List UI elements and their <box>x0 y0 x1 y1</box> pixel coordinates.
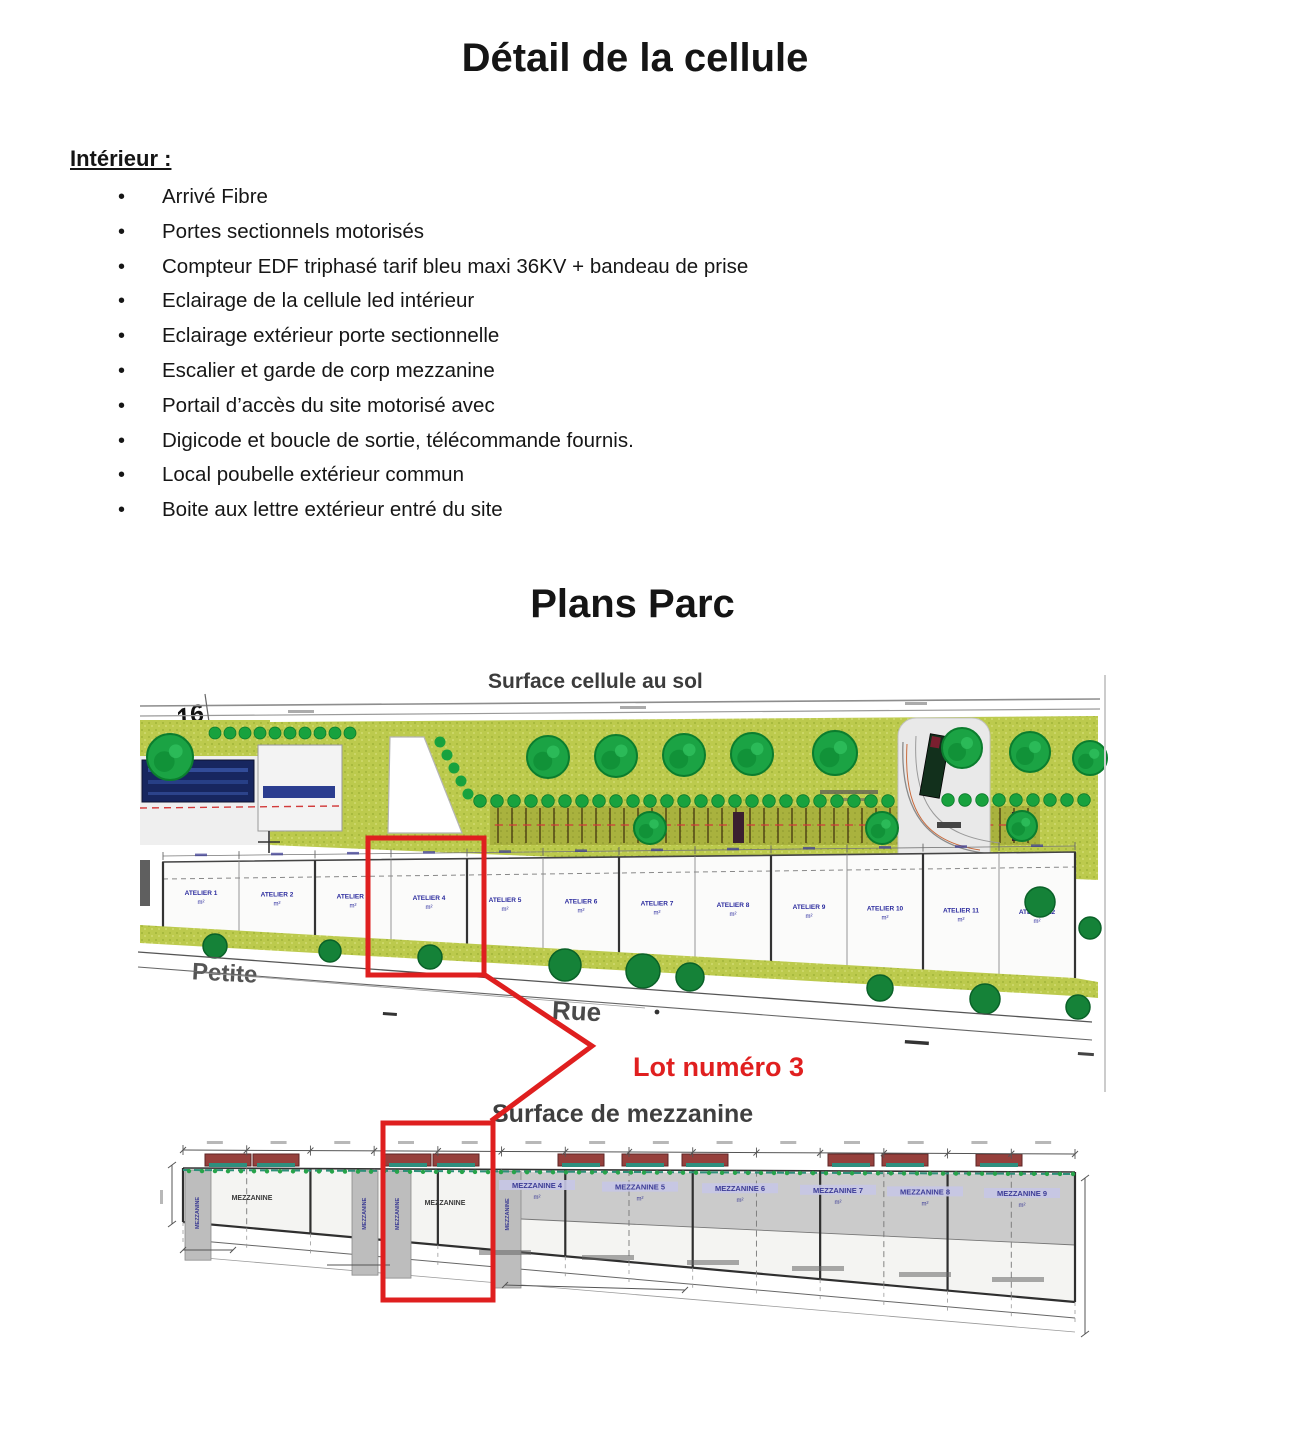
bush-icon <box>1079 917 1101 939</box>
hedge-icon <box>344 727 356 739</box>
interior-bullet-0: Arrivé Fibre <box>118 180 748 215</box>
hedge-icon <box>435 737 446 748</box>
hedge-icon <box>542 795 555 808</box>
dim-text-mark <box>398 1141 414 1144</box>
hedge-icon <box>882 795 895 808</box>
atelier-cell-area: m² <box>426 905 433 911</box>
hedge-icon <box>661 795 674 808</box>
hedge-dot-icon <box>356 1169 360 1173</box>
atelier-cell-area: m² <box>654 910 661 916</box>
hedge-dot-icon <box>551 1170 555 1174</box>
hedge-dot-icon <box>603 1170 607 1174</box>
mezzanine-cell-label: MEZZANINE 5 <box>615 1183 665 1192</box>
atelier-cell-label: ATELIER 10 <box>867 906 904 913</box>
hedge-dot-icon <box>980 1171 984 1175</box>
atelier-cell-area: m² <box>502 907 509 913</box>
hedge-dot-icon <box>863 1171 867 1175</box>
bay-dimension <box>575 849 587 852</box>
hedge-dot-icon <box>850 1171 854 1175</box>
atelier-cell-area: m² <box>882 916 889 922</box>
hedge-dot-icon <box>616 1170 620 1174</box>
atelier-cell-label: ATELIER 7 <box>641 900 674 907</box>
hedge-dot-icon <box>1032 1172 1036 1176</box>
bay-dimension <box>499 850 511 853</box>
mezzanine-cell-label: MEZZANINE 8 <box>900 1187 950 1196</box>
hedge-icon <box>491 795 504 808</box>
bay-dimension <box>803 847 815 850</box>
atelier-cell-label: ATELIER 9 <box>793 904 826 911</box>
bay-dimension <box>1031 844 1043 847</box>
hedge-dot-icon <box>837 1171 841 1175</box>
page-title: Détail de la cellule <box>0 36 1270 81</box>
bush-icon <box>418 945 442 969</box>
atelier-cell-label: ATELIER 1 <box>185 890 218 897</box>
dim-text-mark <box>207 1141 223 1144</box>
dim-text-mark <box>589 1141 605 1144</box>
mezzanine-cell-area: m² <box>737 1198 744 1204</box>
hedge-dot-icon <box>499 1170 503 1174</box>
mezzanine-rotated-label: MEZZANINE <box>195 1197 201 1229</box>
atelier-cell-label: ATELIER 4 <box>413 895 446 902</box>
bush-icon <box>626 954 660 988</box>
hedge-icon <box>239 727 251 739</box>
hedge-dot-icon <box>434 1170 438 1174</box>
door-mark <box>479 1250 531 1255</box>
hedge-dot-icon <box>954 1171 958 1175</box>
interior-feature-list: Arrivé FibrePortes sectionnels motorisés… <box>118 180 748 528</box>
hedge-icon <box>695 795 708 808</box>
hedge-dot-icon <box>577 1170 581 1174</box>
hedge-dot-icon <box>1006 1172 1010 1176</box>
hedge-icon <box>442 750 453 761</box>
hedge-dot-icon <box>525 1170 529 1174</box>
hedge-icon <box>269 727 281 739</box>
site-plans-drawing: ATELIER 1m²ATELIER 2m²ATELIER 3m²ATELIER… <box>0 660 1300 1433</box>
bush-icon <box>203 934 227 958</box>
bay-dimension <box>195 854 207 857</box>
hedge-dot-icon <box>317 1169 321 1173</box>
dim-text-mark <box>908 1141 924 1144</box>
hedge-dot-icon <box>876 1171 880 1175</box>
hedge-dot-icon <box>681 1170 685 1174</box>
bay-dimension <box>423 851 435 854</box>
hedge-dot-icon <box>330 1169 334 1173</box>
hedge-dot-icon <box>967 1171 971 1175</box>
hedge-icon <box>627 795 640 808</box>
hedge-dot-icon <box>447 1170 451 1174</box>
interior-bullet-7: Digicode et boucle de sortie, télécomman… <box>118 424 748 459</box>
dim-text-mark <box>1035 1141 1051 1144</box>
hedge-icon <box>209 727 221 739</box>
interior-bullet-5: Escalier et garde de corp mezzanine <box>118 354 748 389</box>
hedge-dot-icon <box>811 1171 815 1175</box>
hedge-dot-icon <box>408 1170 412 1174</box>
hedge-icon <box>976 794 989 807</box>
dim-text-mark <box>271 1141 287 1144</box>
bay-dimension <box>727 848 739 851</box>
mezzanine-left-label: MEZZANINE <box>232 1195 273 1202</box>
atelier-cell-area: m² <box>806 914 813 920</box>
hedge-dot-icon <box>252 1169 256 1173</box>
hedge-icon <box>814 795 827 808</box>
hedge-dot-icon <box>668 1170 672 1174</box>
hedge-dot-icon <box>512 1170 516 1174</box>
atelier-cell-label: ATELIER 6 <box>565 899 598 906</box>
hedge-dot-icon <box>759 1171 763 1175</box>
mezzanine-left-label: MEZZANINE <box>425 1200 466 1207</box>
atelier-cell-area: m² <box>350 903 357 909</box>
bush-icon <box>867 975 893 1001</box>
bay-dimension <box>879 846 891 849</box>
hedge-dot-icon <box>902 1171 906 1175</box>
atelier-cell-area: m² <box>198 900 205 906</box>
hedge-icon <box>942 794 955 807</box>
hedge-dot-icon <box>915 1171 919 1175</box>
section-heading-interieur: Intérieur : <box>70 146 171 172</box>
hedge-icon <box>865 795 878 808</box>
hedge-icon <box>576 795 589 808</box>
hedge-dot-icon <box>278 1169 282 1173</box>
mezzanine-rotated-label: MEZZANINE <box>505 1198 511 1230</box>
atelier-cell-area: m² <box>730 912 737 918</box>
hedge-dot-icon <box>655 1170 659 1174</box>
mezzanine-cell-label: MEZZANINE 7 <box>813 1186 863 1195</box>
mezzanine-cell-area: m² <box>534 1195 541 1201</box>
atelier-cell-label: ATELIER 8 <box>717 902 750 909</box>
mezzanine-cell-area: m² <box>835 1200 842 1206</box>
hedge-dot-icon <box>642 1170 646 1174</box>
door-mark <box>899 1272 951 1277</box>
mezzanine-rotated-label: MEZZANINE <box>362 1197 368 1229</box>
door-mark <box>992 1277 1044 1282</box>
interior-bullet-4: Eclairage extérieur porte sectionnelle <box>118 319 748 354</box>
hedge-icon <box>593 795 606 808</box>
hedge-icon <box>746 795 759 808</box>
atelier-cell-area: m² <box>958 917 965 923</box>
interior-bullet-8: Local poubelle extérieur commun <box>118 458 748 493</box>
hedge-icon <box>329 727 341 739</box>
hedge-dot-icon <box>200 1169 204 1173</box>
hedge-dot-icon <box>772 1171 776 1175</box>
hedge-icon <box>780 795 793 808</box>
bush-icon <box>676 963 704 991</box>
hedge-icon <box>712 795 725 808</box>
hedge-dot-icon <box>590 1170 594 1174</box>
door-mark <box>582 1255 634 1260</box>
dim-text-mark <box>971 1141 987 1144</box>
dim-text-mark <box>462 1141 478 1144</box>
hedge-dot-icon <box>304 1169 308 1173</box>
bay-dimension <box>955 845 967 848</box>
hedge-dot-icon <box>564 1170 568 1174</box>
hedge-icon <box>848 795 861 808</box>
hedge-dot-icon <box>395 1170 399 1174</box>
dim-text-mark <box>844 1141 860 1144</box>
hedge-dot-icon <box>720 1171 724 1175</box>
atelier-cell-label: ATELIER 2 <box>261 892 294 899</box>
bush-icon <box>549 949 581 981</box>
hedge-dot-icon <box>993 1172 997 1176</box>
mezzanine-cell-area: m² <box>1019 1203 1026 1209</box>
hedge-dot-icon <box>239 1169 243 1173</box>
dim-text-mark <box>525 1141 541 1144</box>
atelier-cell-label: ATELIER 11 <box>943 907 979 914</box>
door-mark <box>687 1260 739 1265</box>
hedge-dot-icon <box>421 1170 425 1174</box>
hedge-icon <box>644 795 657 808</box>
hedge-dot-icon <box>486 1170 490 1174</box>
hedge-dot-icon <box>941 1171 945 1175</box>
bay-dimension <box>651 849 663 852</box>
hedge-icon <box>610 795 623 808</box>
interior-bullet-1: Portes sectionnels motorisés <box>118 215 748 250</box>
hedge-dot-icon <box>785 1171 789 1175</box>
bush-icon <box>319 940 341 962</box>
mezzanine-cell-label: MEZZANINE 4 <box>512 1181 563 1190</box>
hedge-dot-icon <box>928 1171 932 1175</box>
hedge-dot-icon <box>538 1170 542 1174</box>
hedge-dot-icon <box>369 1169 373 1173</box>
atelier-cell-area: m² <box>1034 919 1041 925</box>
hedge-dot-icon <box>1058 1172 1062 1176</box>
hedge-dot-icon <box>629 1170 633 1174</box>
hedge-icon <box>729 795 742 808</box>
atelier-cell-area: m² <box>578 909 585 915</box>
hedge-dot-icon <box>213 1169 217 1173</box>
hedge-icon <box>559 795 572 808</box>
hedge-icon <box>959 794 972 807</box>
hedge-dot-icon <box>460 1170 464 1174</box>
hedge-icon <box>474 795 487 808</box>
dim-text-mark <box>653 1141 669 1144</box>
hedge-icon <box>224 727 236 739</box>
bay-dimension <box>271 853 283 856</box>
atelier-cell-label: ATELIER 5 <box>489 897 522 904</box>
hedge-dot-icon <box>291 1169 295 1173</box>
hedge-dot-icon <box>1071 1172 1075 1176</box>
hedge-icon <box>678 795 691 808</box>
bay-dimension <box>347 852 359 855</box>
hedge-dot-icon <box>265 1169 269 1173</box>
interior-bullet-9: Boite aux lettre extérieur entré du site <box>118 493 748 528</box>
hedge-icon <box>831 795 844 808</box>
bush-icon <box>1025 887 1055 917</box>
mezzanine-cell-label: MEZZANINE 9 <box>997 1189 1047 1198</box>
hedge-icon <box>1027 794 1040 807</box>
atelier-cell-label: ATELIER 3 <box>337 893 370 900</box>
plans-parc-title: Plans Parc <box>0 582 1265 627</box>
hedge-icon <box>763 795 776 808</box>
dim-text-mark <box>717 1141 733 1144</box>
hedge-icon <box>1044 794 1057 807</box>
hedge-dot-icon <box>473 1170 477 1174</box>
hedge-icon <box>314 727 326 739</box>
hedge-dot-icon <box>343 1169 347 1173</box>
atelier-cell-area: m² <box>274 902 281 908</box>
hedge-dot-icon <box>733 1171 737 1175</box>
hedge-icon <box>456 776 467 787</box>
hedge-dot-icon <box>798 1171 802 1175</box>
hedge-icon <box>1010 794 1023 807</box>
hedge-dot-icon <box>226 1169 230 1173</box>
hedge-dot-icon <box>889 1171 893 1175</box>
dim-text-mark <box>780 1141 796 1144</box>
hedge-icon <box>284 727 296 739</box>
hedge-dot-icon <box>1045 1172 1049 1176</box>
mezzanine-rotated-label: MEZZANINE <box>395 1198 401 1230</box>
hedge-dot-icon <box>1019 1172 1023 1176</box>
bush-icon <box>970 984 1000 1014</box>
dim-text-mark <box>334 1141 350 1144</box>
hedge-dot-icon <box>187 1169 191 1173</box>
hedge-icon <box>1061 794 1074 807</box>
hedge-icon <box>993 794 1006 807</box>
interior-bullet-2: Compteur EDF triphasé tarif bleu maxi 36… <box>118 250 748 285</box>
mezzanine-cell-label: MEZZANINE 6 <box>715 1184 765 1193</box>
document-page: Détail de la cellule Intérieur : Arrivé … <box>0 0 1300 1433</box>
interior-bullet-6: Portail d’accès du site motorisé avec <box>118 389 748 424</box>
bush-icon <box>1066 995 1090 1019</box>
hedge-icon <box>254 727 266 739</box>
hedge-icon <box>299 727 311 739</box>
hedge-icon <box>1078 794 1091 807</box>
hedge-dot-icon <box>746 1171 750 1175</box>
door-mark <box>792 1266 844 1271</box>
mezzanine-cell-area: m² <box>922 1201 929 1207</box>
hedge-dot-icon <box>824 1171 828 1175</box>
hedge-icon <box>449 763 460 774</box>
mezzanine-cell-area: m² <box>637 1197 644 1203</box>
hedge-dot-icon <box>707 1171 711 1175</box>
hedge-icon <box>508 795 521 808</box>
hedge-dot-icon <box>694 1171 698 1175</box>
hedge-icon <box>525 795 538 808</box>
interior-bullet-3: Eclairage de la cellule led intérieur <box>118 284 748 319</box>
hedge-icon <box>463 789 474 800</box>
hedge-icon <box>797 795 810 808</box>
